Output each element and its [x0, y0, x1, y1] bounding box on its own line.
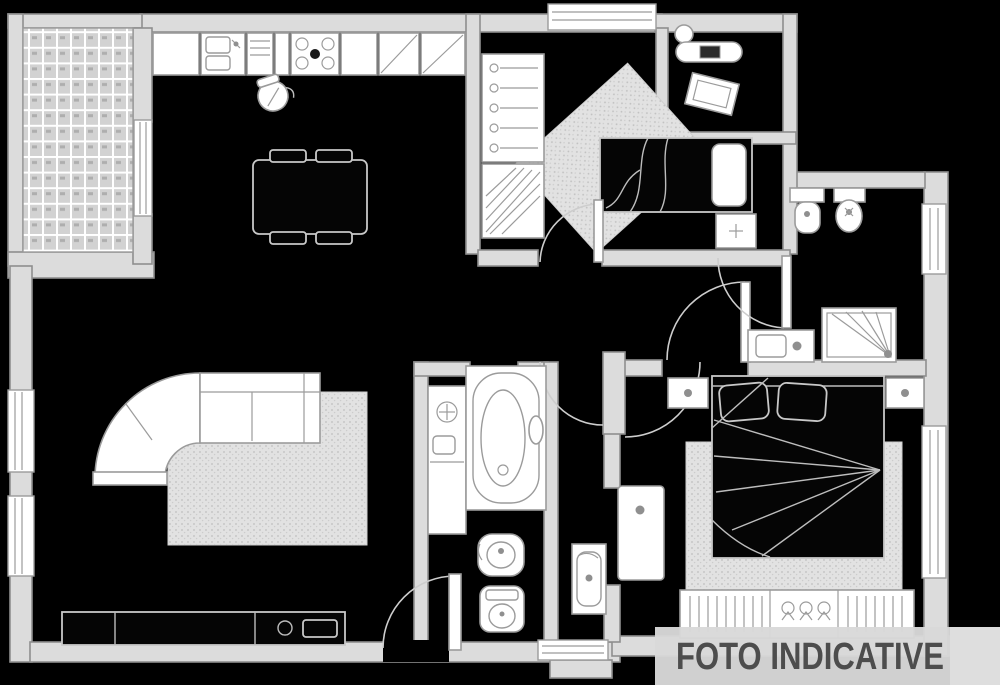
wardrobe-closet [482, 54, 544, 238]
stove-icon [291, 33, 339, 75]
chair [316, 232, 352, 244]
dining-table [253, 150, 367, 244]
bathtub-icon [466, 366, 546, 510]
terrace [23, 28, 152, 252]
pillow-icon [712, 144, 746, 206]
banner-edge [950, 627, 1000, 685]
floor-plan-svg: FOTO INDICATIVE [0, 0, 1000, 685]
dishwasher-icon [247, 33, 273, 75]
vanity-icon [748, 330, 814, 362]
faucet-icon [529, 416, 543, 444]
kitchen-cabinet [153, 33, 199, 75]
pillow-icon [777, 382, 827, 421]
watermark-banner: FOTO INDICATIVE [655, 627, 1000, 685]
corridor-sink-icon [572, 544, 606, 614]
bidet-icon [478, 534, 524, 576]
door-leaf [594, 200, 603, 262]
toilet-icon [480, 586, 524, 632]
corridor-door-panel [618, 486, 664, 580]
kitchen-cabinet [341, 33, 377, 75]
single-bed [600, 138, 752, 212]
nightstand [886, 378, 924, 408]
window-bottom [538, 640, 608, 660]
shelf-unit [482, 164, 544, 238]
window-left-2 [8, 496, 34, 576]
terrace-door-window [134, 120, 152, 216]
shower-icon [822, 308, 896, 362]
floor-plan-image: FOTO INDICATIVE [0, 0, 1000, 685]
corner-cabinet [379, 33, 419, 75]
chair [270, 232, 306, 244]
toilet-icon [790, 188, 824, 233]
window-right-2 [922, 426, 946, 578]
terrace-tiled-floor [23, 28, 133, 252]
chair [270, 150, 306, 162]
kitchen-unit [275, 33, 289, 75]
banner-text: FOTO INDICATIVE [676, 636, 944, 678]
window-left-1 [8, 390, 34, 472]
chair [316, 150, 352, 162]
bidet-icon [834, 188, 865, 232]
nightstand [668, 378, 708, 408]
entrance-door-leaf [449, 574, 461, 650]
sink-icon [201, 33, 245, 75]
window-top [548, 4, 656, 30]
window-right-1 [922, 204, 946, 274]
door-leaf [782, 256, 791, 328]
door-mullion [603, 352, 625, 434]
decor-box-icon [303, 620, 337, 637]
washbasin-icon [428, 386, 466, 534]
sideboard [62, 612, 345, 645]
nightstand [716, 214, 756, 248]
corner-cabinet [421, 33, 465, 75]
double-bed [712, 376, 884, 558]
